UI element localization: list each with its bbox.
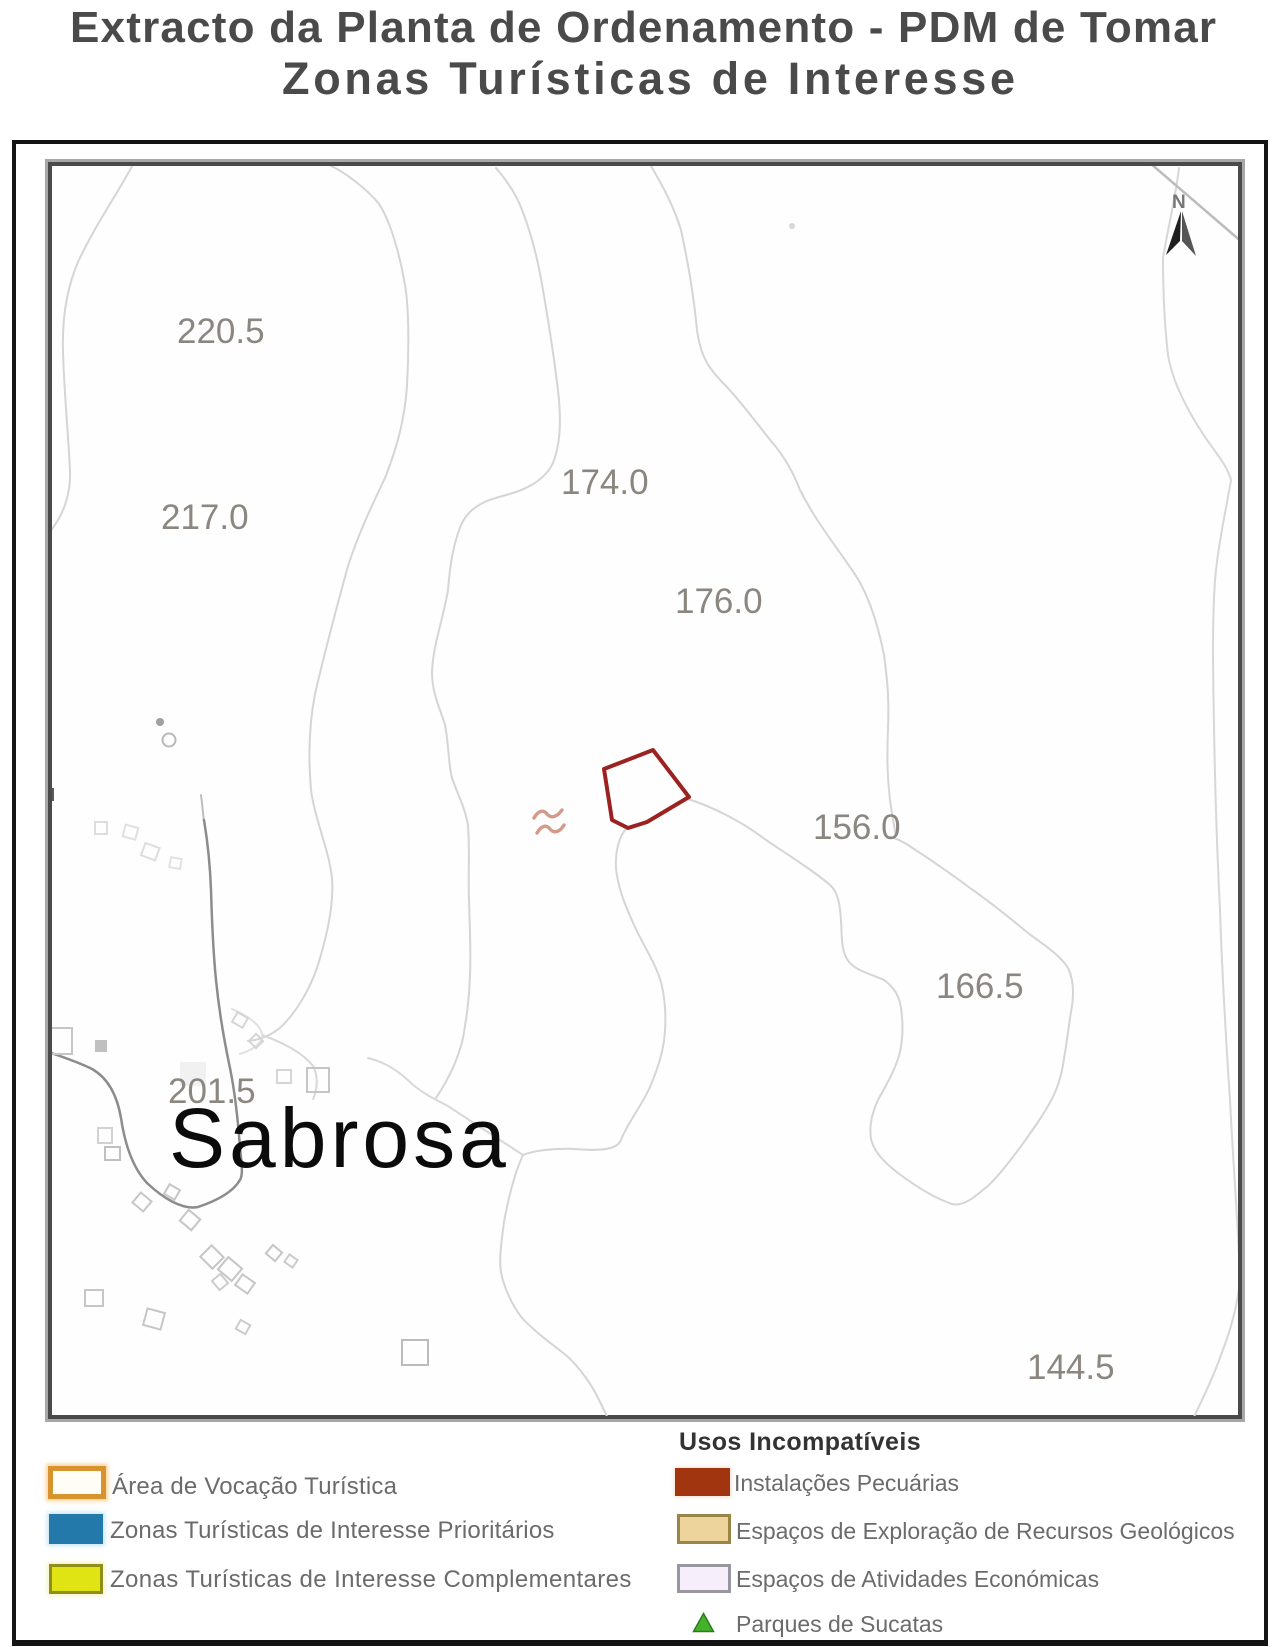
svg-text:220.5: 220.5 [177, 312, 265, 351]
svg-text:174.0: 174.0 [561, 463, 649, 502]
svg-text:217.0: 217.0 [161, 498, 249, 537]
svg-text:156.0: 156.0 [813, 808, 901, 847]
svg-text:N: N [1172, 192, 1186, 213]
svg-text:176.0: 176.0 [675, 582, 763, 621]
svg-text:Sabrosa: Sabrosa [169, 1091, 510, 1185]
svg-text:144.5: 144.5 [1027, 1348, 1115, 1387]
svg-text:166.5: 166.5 [936, 967, 1024, 1006]
